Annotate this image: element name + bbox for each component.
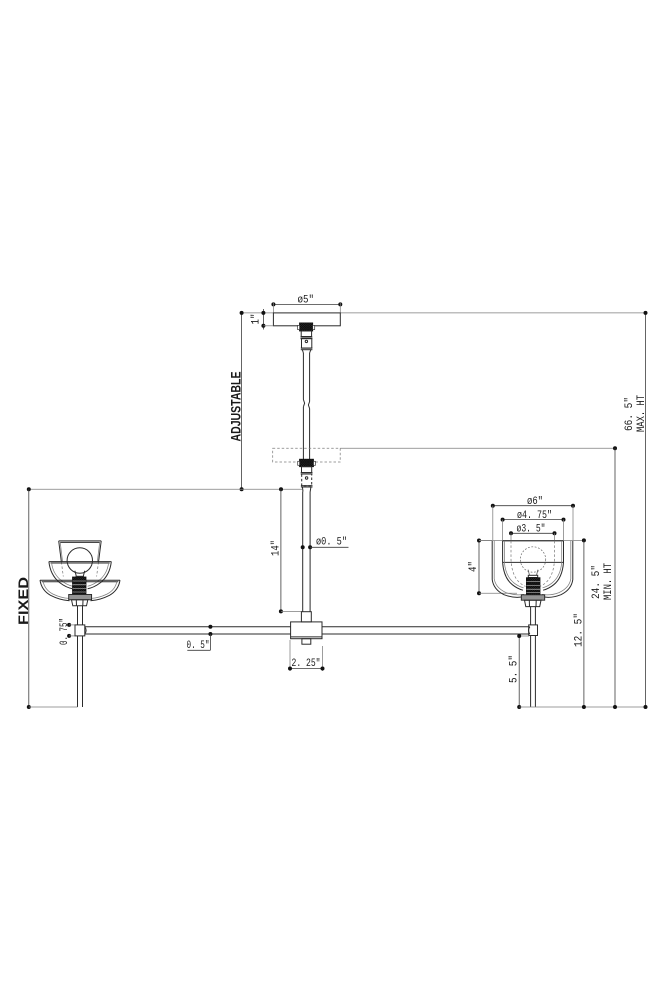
svg-text:1″: 1″ [251,314,263,325]
svg-text:5. 5″: 5. 5″ [509,655,521,683]
svg-text:MIN. HT: MIN. HT [603,563,615,600]
svg-text:12. 5″: 12. 5″ [574,613,586,647]
svg-text:4″: 4″ [468,561,480,572]
svg-text:MAX. HT: MAX. HT [636,395,648,432]
svg-text:ø4. 75″: ø4. 75″ [517,510,552,522]
svg-text:0. 5″: 0. 5″ [187,640,210,652]
svg-text:14″: 14″ [271,540,283,556]
svg-text:FIXED: FIXED [16,577,31,625]
svg-text:ADJUSTABLE: ADJUSTABLE [229,372,244,442]
svg-text:ø3. 5″: ø3. 5″ [517,524,546,536]
svg-text:ø6″: ø6″ [527,496,543,508]
svg-text:0. 75″: 0. 75″ [59,618,71,645]
svg-text:ø0. 5″: ø0. 5″ [316,537,347,549]
svg-text:24. 5″: 24. 5″ [591,565,603,599]
svg-text:66. 5″: 66. 5″ [624,397,636,431]
svg-text:2. 25″: 2. 25″ [292,658,321,670]
